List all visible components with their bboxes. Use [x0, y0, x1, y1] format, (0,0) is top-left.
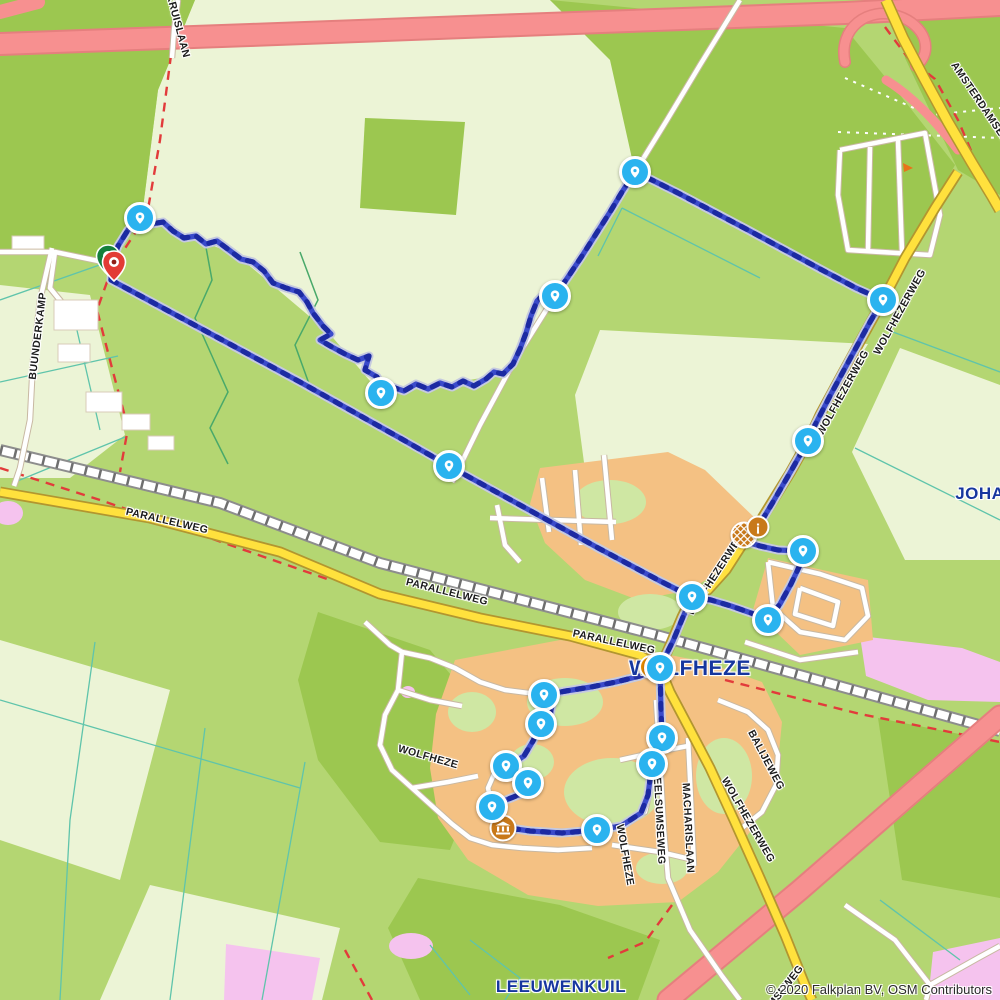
- route-waypoint-marker[interactable]: [433, 450, 465, 482]
- alert-poi-icon[interactable]: ¡: [747, 516, 770, 539]
- route-waypoint-marker[interactable]: [476, 791, 508, 823]
- route-waypoint-marker[interactable]: [867, 284, 899, 316]
- route-waypoint-marker[interactable]: [792, 425, 824, 457]
- route-waypoint-marker[interactable]: [365, 377, 397, 409]
- route-waypoint-marker[interactable]: [676, 581, 708, 613]
- route-waypoint-marker[interactable]: [512, 767, 544, 799]
- route-waypoint-marker[interactable]: [787, 535, 819, 567]
- route-waypoint-marker[interactable]: [752, 604, 784, 636]
- route-waypoint-marker[interactable]: [619, 156, 651, 188]
- town-label: JOHANNAHOEVE: [955, 484, 1000, 504]
- route-waypoint-marker[interactable]: [124, 202, 156, 234]
- town-label: LEEUWENKUIL: [496, 977, 626, 997]
- map-tiles: [0, 0, 1000, 1000]
- route-waypoint-marker[interactable]: [636, 748, 668, 780]
- route-waypoint-marker[interactable]: [644, 652, 676, 684]
- route-waypoint-marker[interactable]: [528, 679, 560, 711]
- route-waypoint-marker[interactable]: [525, 708, 557, 740]
- attribution: © 2020 Falkplan BV, OSM Contributors: [766, 982, 992, 997]
- map-canvas[interactable]: KRUISLAANAMSTERDAMSEWEGBUUNDERKAMPPARALL…: [0, 0, 1000, 1000]
- route-waypoint-marker[interactable]: [581, 814, 613, 846]
- route-waypoint-marker[interactable]: [539, 280, 571, 312]
- end-marker-pin[interactable]: [101, 250, 127, 282]
